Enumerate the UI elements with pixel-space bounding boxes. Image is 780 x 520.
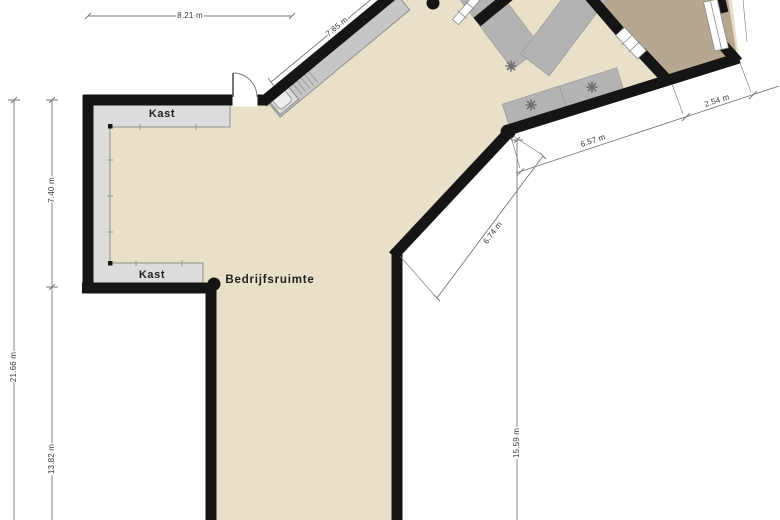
column-post xyxy=(501,125,516,140)
dimension-label-left-total: 21.66 m xyxy=(9,352,18,382)
closet-top-label: Kast xyxy=(149,108,175,120)
closet-bottom-label: Kast xyxy=(139,269,165,281)
dimension-label-left-upper: 7.40 m xyxy=(47,177,56,203)
closet-corner-post-top xyxy=(108,124,113,129)
main-floor-area xyxy=(88,0,739,520)
column-post xyxy=(208,278,221,291)
entrance-door-opening xyxy=(233,94,258,107)
dimension-label-lower-diagonal: 6.74 m xyxy=(481,220,504,246)
plant-icon xyxy=(506,61,516,71)
dimension-label-right-vertical: 15.59 m xyxy=(512,428,521,458)
dimension-label-top: 8.21 m xyxy=(177,11,203,20)
main-room-label: Bedrijfsruimte xyxy=(225,274,314,286)
plant-icon xyxy=(587,82,597,92)
dimension-label-right-diagonal: 6.57 m xyxy=(579,132,606,149)
dim-line-right-vertical xyxy=(511,137,523,520)
closet-corner-post-bottom xyxy=(108,261,113,266)
entrance-door-arc xyxy=(233,73,257,97)
floorplan-canvas: 8.21 m 7.65 m 7.40 m 21.66 m 13.82 m 6.5… xyxy=(0,0,780,520)
plant-icon xyxy=(526,100,536,110)
dim-line-left-outer xyxy=(8,97,20,520)
floorplan-svg: 8.21 m 7.65 m 7.40 m 21.66 m 13.82 m 6.5… xyxy=(0,0,780,520)
dimension-label-left-lower: 13.82 m xyxy=(47,444,56,474)
